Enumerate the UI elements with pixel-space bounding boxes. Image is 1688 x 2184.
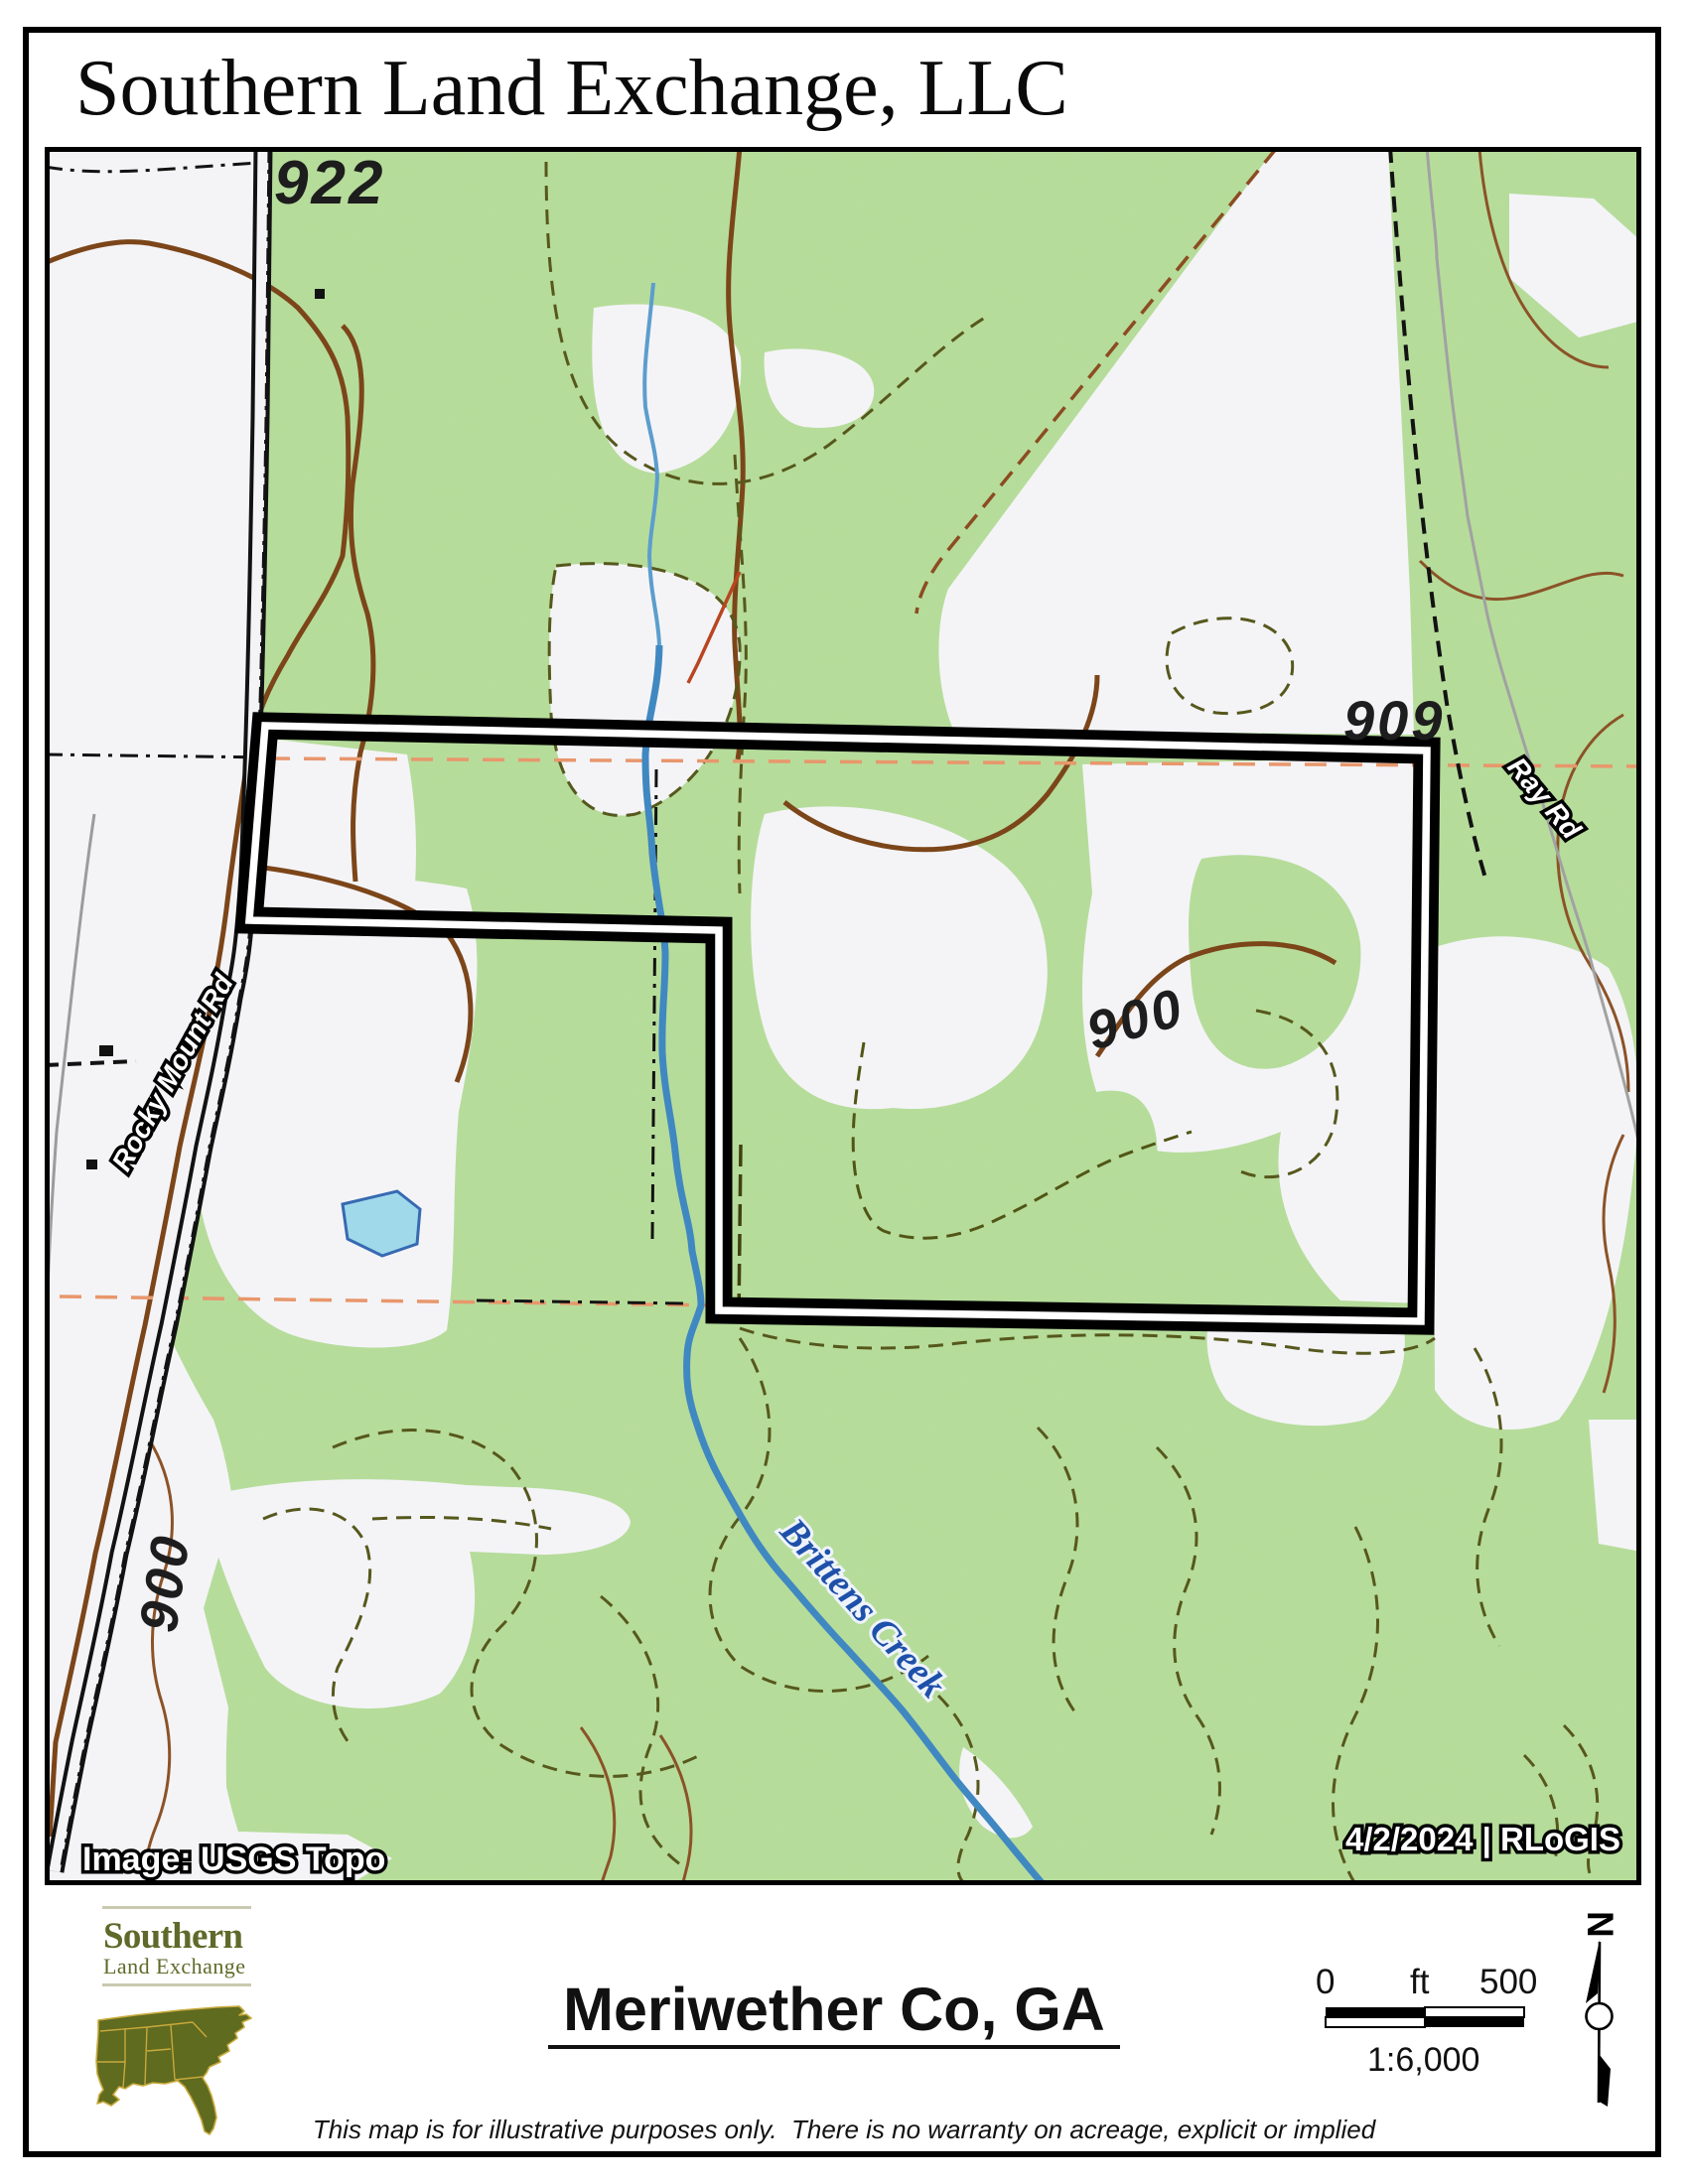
svg-text:Land Exchange: Land Exchange (103, 1954, 245, 1979)
svg-text:1:6,000: 1:6,000 (1367, 2041, 1479, 2079)
svg-text:Southern: Southern (103, 1916, 243, 1957)
svg-text:500: 500 (1479, 1963, 1537, 2001)
svg-text:ft: ft (1410, 1963, 1430, 2001)
svg-text:N: N (1580, 1911, 1620, 1938)
svg-text:0: 0 (1316, 1963, 1335, 2001)
